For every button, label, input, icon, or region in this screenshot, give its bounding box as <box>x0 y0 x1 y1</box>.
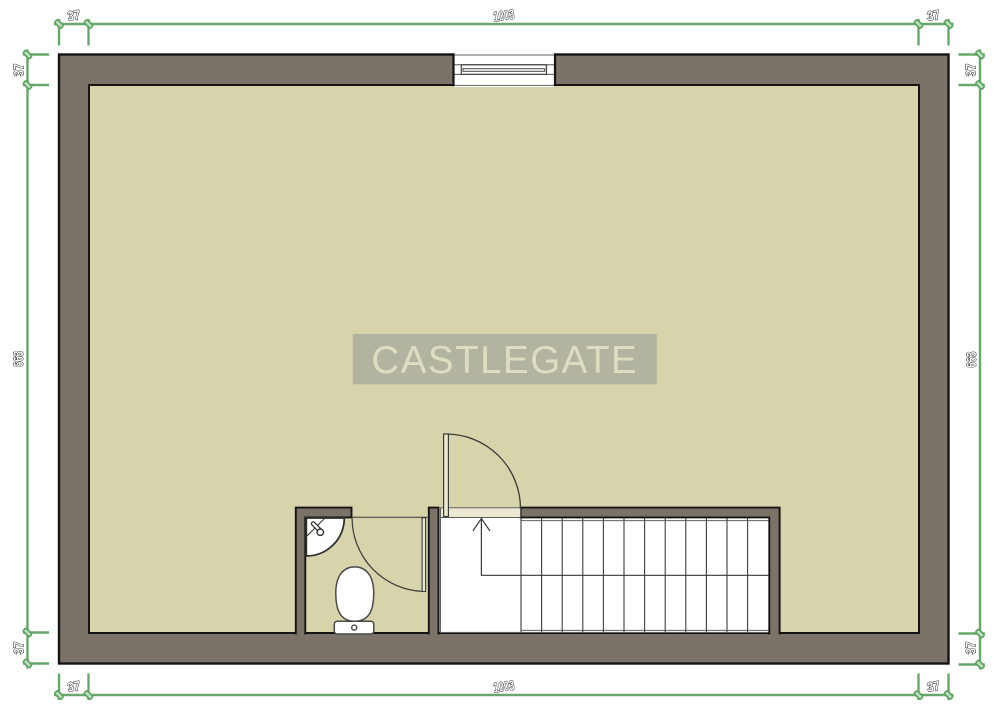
svg-text:37: 37 <box>12 642 27 655</box>
svg-text:CASTLEGATE: CASTLEGATE <box>371 339 638 382</box>
svg-text:37: 37 <box>964 64 979 77</box>
svg-text:1003: 1003 <box>492 678 515 696</box>
svg-text:37: 37 <box>67 678 81 695</box>
svg-text:37: 37 <box>926 7 940 24</box>
svg-text:1003: 1003 <box>492 7 515 25</box>
svg-text:37: 37 <box>12 64 27 77</box>
svg-text:37: 37 <box>926 678 940 695</box>
svg-text:37: 37 <box>67 7 81 24</box>
svg-text:663: 663 <box>11 351 26 367</box>
svg-text:663: 663 <box>964 351 979 367</box>
svg-text:37: 37 <box>964 642 979 655</box>
